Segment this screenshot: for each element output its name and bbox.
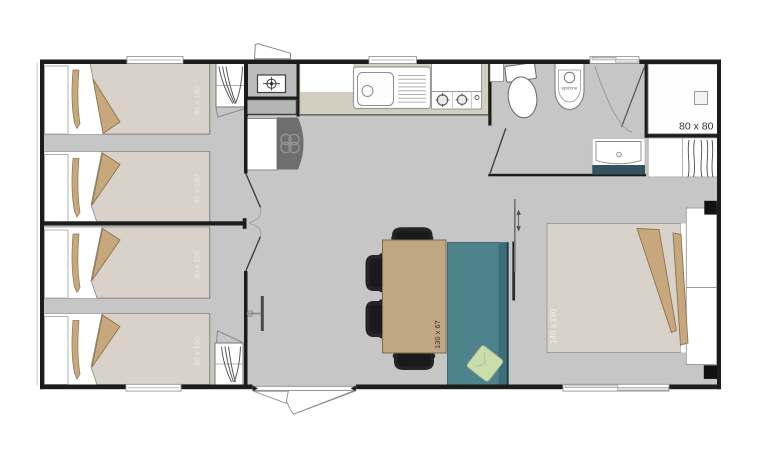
svg-text:130 x 67: 130 x 67 [433, 320, 442, 349]
svg-text:80 x 80: 80 x 80 [679, 121, 714, 133]
svg-text:140 x 190: 140 x 190 [549, 308, 558, 344]
svg-text:epizone: epizone [561, 86, 578, 91]
